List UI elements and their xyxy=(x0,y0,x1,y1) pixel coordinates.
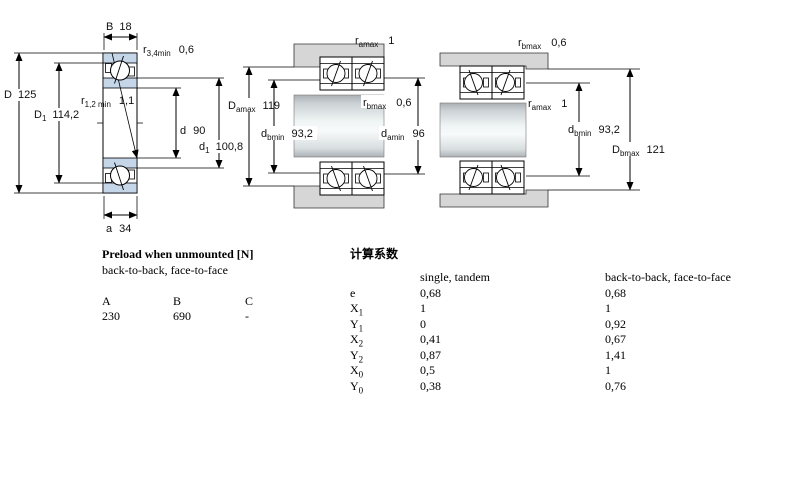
ball-top xyxy=(111,61,130,80)
factor-value-1: 0,5 xyxy=(420,364,435,377)
catalog-page: B18 r3,4min0,6 D125 D1114,2 r1,2 min1,1 … xyxy=(0,0,800,500)
factors-title: 计算系数 xyxy=(350,248,398,261)
factor-symbol: Y0 xyxy=(350,380,363,397)
label-a: a34 xyxy=(106,223,131,235)
bearing-row-top xyxy=(320,57,384,90)
bearing-row-top xyxy=(460,66,524,99)
label-D: D125 xyxy=(4,89,36,101)
factor-value-1: 0 xyxy=(420,318,426,331)
preload-subtitle: back-to-back, face-to-face xyxy=(102,264,228,277)
factor-value-2: 1 xyxy=(605,302,611,315)
factor-value-1: 0,38 xyxy=(420,380,441,393)
shaft xyxy=(440,103,526,157)
preload-title: Preload when unmounted [N] xyxy=(102,248,253,261)
bearing-row-bottom xyxy=(460,161,524,194)
factors-col2-header: back-to-back, face-to-face xyxy=(605,271,731,284)
preload-header-A: A xyxy=(102,295,111,308)
bearing-row-bottom xyxy=(320,162,384,195)
label-ramax-mid: ramax1 xyxy=(355,35,394,49)
label-rbmax-right: rbmax0,6 xyxy=(518,37,567,51)
factor-value-2: 0,68 xyxy=(605,287,626,300)
preload-header-C: C xyxy=(245,295,253,308)
label-B: B18 xyxy=(106,21,132,33)
preload-value-B: 690 xyxy=(173,310,191,323)
paired-diagram-face-to-face: rbmax0,6 ramax1 dbmin93,2 Dbmax121 xyxy=(440,37,670,207)
factor-value-2: 0,67 xyxy=(605,333,626,346)
paired-diagram-tandem: ramax1 Damax119 dbmin93,2 rbmax0,6 damin… xyxy=(226,35,433,208)
factor-value-2: 0,92 xyxy=(605,318,626,331)
factor-value-1: 1 xyxy=(420,302,426,315)
factor-value-1: 0,87 xyxy=(420,349,441,362)
factor-value-2: 1,41 xyxy=(605,349,626,362)
label-D1: D1114,2 xyxy=(34,109,79,123)
label-r34: r3,4min0,6 xyxy=(143,44,194,58)
bearing-drawings: B18 r3,4min0,6 D125 D1114,2 r1,2 min1,1 … xyxy=(0,0,800,245)
preload-value-A: 230 xyxy=(102,310,120,323)
single-bearing-diagram: B18 r3,4min0,6 D125 D1114,2 r1,2 min1,1 … xyxy=(2,21,246,235)
label-ramax-right: ramax1 xyxy=(528,98,567,112)
factor-value-1: 0,41 xyxy=(420,333,441,346)
preload-header-B: B xyxy=(173,295,181,308)
ball-bottom xyxy=(111,166,130,185)
factor-value-1: 0,68 xyxy=(420,287,441,300)
label-d: d90 xyxy=(180,125,205,137)
factor-value-2: 0,76 xyxy=(605,380,626,393)
factors-col1-header: single, tandem xyxy=(420,271,490,284)
preload-value-C: - xyxy=(245,310,249,323)
factor-value-2: 1 xyxy=(605,364,611,377)
